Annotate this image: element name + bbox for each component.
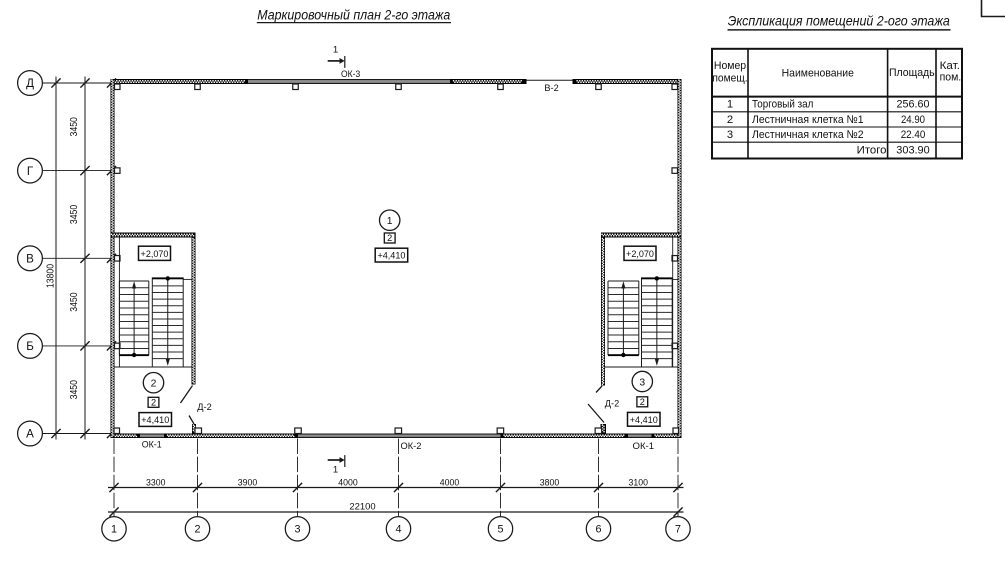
svg-text:Кат.: Кат. [940, 60, 960, 72]
svg-text:В-2: В-2 [544, 83, 558, 93]
svg-text:1: 1 [333, 464, 338, 475]
svg-text:Б: Б [26, 340, 34, 353]
svg-text:помещ.: помещ. [712, 73, 747, 85]
svg-text:4: 4 [395, 524, 401, 536]
svg-text:4000: 4000 [440, 477, 459, 488]
svg-text:1: 1 [387, 216, 393, 227]
svg-text:2: 2 [194, 524, 200, 536]
svg-text:256.60: 256.60 [897, 98, 930, 110]
svg-text:+2,070: +2,070 [141, 249, 169, 260]
svg-text:22.40: 22.40 [901, 129, 926, 141]
svg-text:Торговый зал: Торговый зал [752, 98, 813, 110]
svg-text:6: 6 [595, 524, 601, 536]
svg-text:3900: 3900 [238, 477, 257, 488]
svg-text:Г: Г [27, 165, 34, 178]
svg-text:24.90: 24.90 [901, 114, 925, 126]
svg-text:+4,410: +4,410 [141, 415, 169, 426]
svg-text:1: 1 [111, 524, 117, 536]
svg-text:303.90: 303.90 [896, 145, 929, 157]
svg-text:+4,410: +4,410 [377, 251, 405, 262]
svg-text:2: 2 [640, 397, 645, 407]
svg-text:+4,410: +4,410 [630, 415, 658, 426]
svg-text:Лестничная клетка №1: Лестничная клетка №1 [752, 114, 864, 126]
svg-text:13800: 13800 [46, 264, 57, 288]
svg-text:1: 1 [727, 98, 733, 110]
svg-text:пом.: пом. [940, 71, 962, 83]
svg-text:Лестничная клетка №2: Лестничная клетка №2 [752, 129, 864, 141]
svg-text:Итого: Итого [857, 145, 887, 157]
svg-text:ОК-1: ОК-1 [142, 440, 162, 450]
svg-text:3800: 3800 [540, 477, 559, 488]
svg-text:5: 5 [497, 524, 503, 536]
svg-text:1: 1 [333, 44, 338, 55]
svg-text:4000: 4000 [338, 477, 357, 488]
svg-text:Экспликация помещений 2-ого эт: Экспликация помещений 2-ого этажа [728, 14, 950, 29]
svg-text:А: А [26, 428, 34, 441]
svg-text:3: 3 [639, 377, 645, 388]
svg-text:Д-2: Д-2 [197, 402, 212, 412]
svg-text:3450: 3450 [69, 380, 80, 400]
svg-text:3100: 3100 [629, 477, 648, 488]
svg-text:ОК-1: ОК-1 [633, 441, 655, 451]
svg-text:ОК-3: ОК-3 [341, 69, 360, 79]
svg-text:7: 7 [675, 524, 681, 536]
svg-text:Д-2: Д-2 [605, 398, 620, 408]
svg-text:Д: Д [26, 77, 34, 90]
svg-text:3300: 3300 [146, 477, 165, 488]
svg-text:22100: 22100 [349, 501, 375, 512]
svg-text:Наименование: Наименование [782, 68, 854, 80]
svg-text:+2,070: +2,070 [626, 249, 654, 260]
svg-text:Номер: Номер [714, 60, 746, 72]
svg-text:3450: 3450 [69, 292, 80, 312]
svg-text:3: 3 [294, 524, 300, 536]
svg-text:2: 2 [151, 379, 157, 390]
svg-text:3: 3 [727, 129, 733, 141]
svg-text:2: 2 [387, 233, 392, 243]
svg-text:2: 2 [151, 398, 156, 408]
svg-text:2: 2 [727, 114, 733, 126]
svg-text:Маркировочный план 2-го этажа: Маркировочный план 2-го этажа [257, 7, 450, 22]
svg-text:Площадь: Площадь [889, 67, 935, 79]
svg-text:3450: 3450 [69, 117, 80, 137]
svg-text:В: В [26, 253, 34, 266]
svg-text:ОК-2: ОК-2 [401, 441, 422, 451]
svg-text:3450: 3450 [69, 205, 80, 225]
